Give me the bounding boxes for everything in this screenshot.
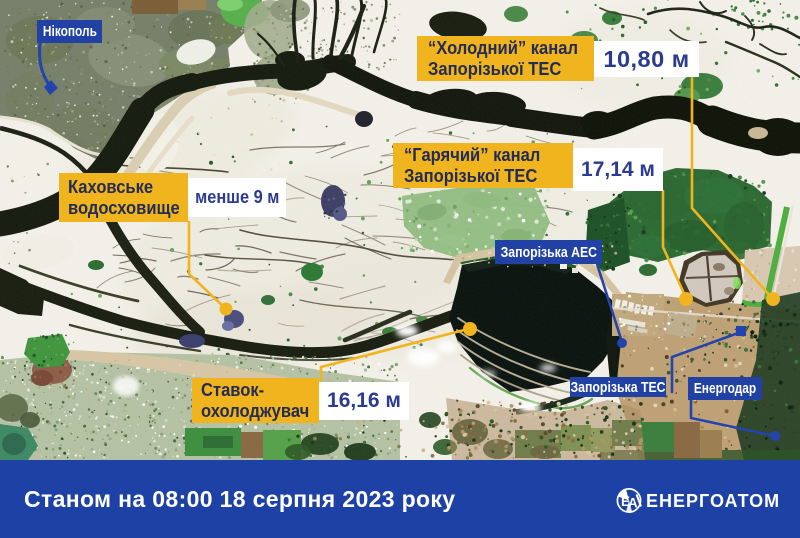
svg-text:ЕНЕРГОАТОМ: ЕНЕРГОАТОМ: [646, 491, 780, 511]
svg-text:А: А: [628, 496, 638, 511]
